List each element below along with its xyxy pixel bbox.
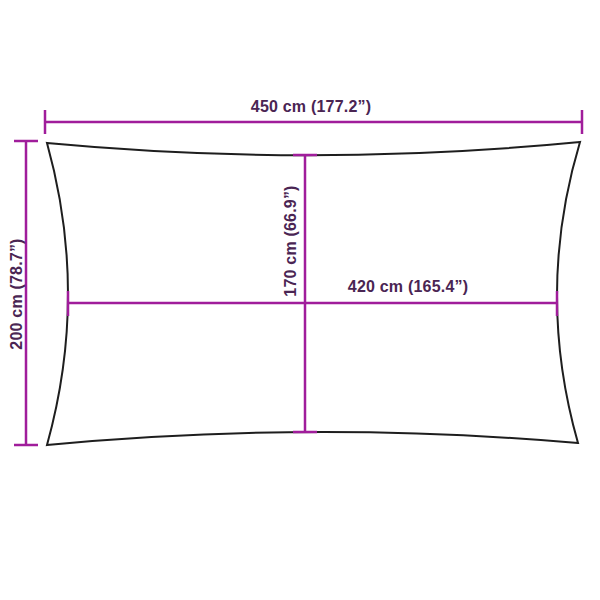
shade-sail-dimension-diagram: 450 cm (177.2”) 200 cm (78.7”) 170 cm (6… xyxy=(0,0,600,600)
height-dimension-label: 200 cm (78.7”) xyxy=(8,238,26,349)
width-dimension-label: 450 cm (177.2”) xyxy=(251,98,371,116)
diagram-drawing xyxy=(0,0,600,600)
inner-height-dimension-label: 170 cm (66.9”) xyxy=(282,185,300,296)
shade-sail-outline xyxy=(47,142,580,445)
inner-width-dimension-label: 420 cm (165.4”) xyxy=(348,278,468,296)
